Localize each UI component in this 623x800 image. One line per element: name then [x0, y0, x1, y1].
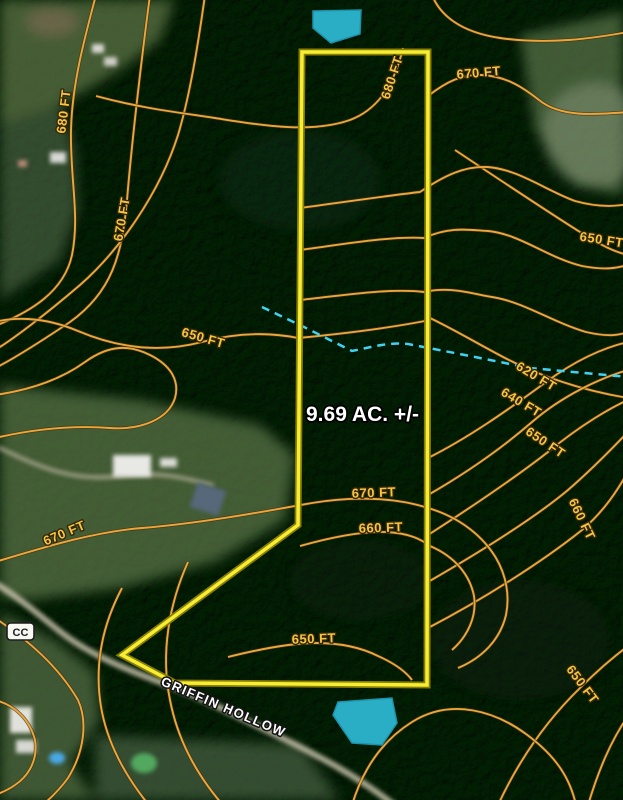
contour-elevation-label: 670 FT [352, 484, 397, 501]
barn [113, 455, 151, 477]
contour-elevation-label: 660 FT [359, 519, 404, 536]
route-badge: CC [7, 623, 34, 640]
swimming-pool [49, 752, 65, 764]
acreage-label: 9.69 AC. +/- [306, 403, 419, 426]
map-canvas[interactable]: 680 FT670 FT680 FT670 FT650 FT650 FT620 … [0, 0, 623, 800]
topo-map: 680 FT670 FT680 FT670 FT650 FT650 FT620 … [0, 0, 623, 800]
route-badge-label: CC [13, 627, 29, 639]
contour-elevation-label: 650 FT [292, 630, 337, 647]
